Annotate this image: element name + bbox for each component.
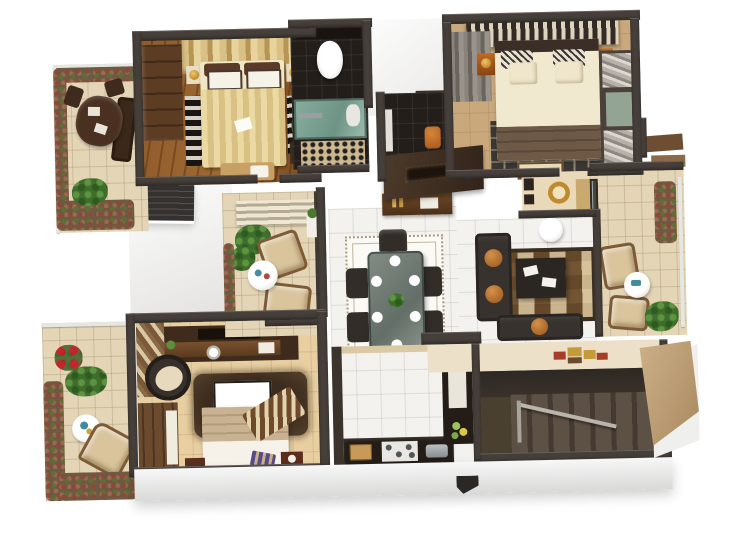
hanging-vine <box>223 243 236 319</box>
wall <box>316 187 328 317</box>
wall <box>297 164 369 174</box>
room-living <box>451 217 598 344</box>
bed <box>200 60 286 168</box>
shower-seat <box>346 104 360 126</box>
palm-plant <box>65 366 108 397</box>
balcony-railing <box>678 177 685 327</box>
wardrobe-glass-door <box>606 92 633 127</box>
room-garden-terrace <box>42 321 140 501</box>
wall <box>317 311 331 467</box>
dining-chair <box>346 268 369 298</box>
wardrobe-door <box>602 53 635 88</box>
coffee-table <box>515 258 566 299</box>
wardrobe-door <box>604 130 637 165</box>
balcony-chair <box>607 295 650 332</box>
dining-chair <box>379 229 407 252</box>
sofa-vertical <box>475 233 513 322</box>
orange-cushion <box>531 318 548 335</box>
bed <box>495 39 602 161</box>
paper <box>258 342 274 353</box>
wardrobe <box>134 402 180 473</box>
display-niche <box>405 163 449 183</box>
placemat <box>88 107 100 116</box>
wall <box>421 331 481 344</box>
orange-stool <box>424 126 440 148</box>
sofa-horizontal <box>497 313 584 341</box>
kitchen-wall <box>331 347 344 467</box>
wall <box>136 174 258 186</box>
planter-hedge-bottom <box>59 471 138 501</box>
paper <box>542 277 557 288</box>
placemat <box>94 123 108 135</box>
cream-pillow <box>509 62 537 85</box>
wall-frame <box>524 194 534 204</box>
orange-cushion <box>485 285 503 303</box>
wardrobe <box>142 44 184 141</box>
shower-arm <box>298 113 322 119</box>
wardrobe-open-door <box>166 410 178 464</box>
bedside-rug-left <box>185 96 203 166</box>
hanging-planters <box>654 181 677 243</box>
room-master-balcony <box>589 167 687 337</box>
wall <box>288 18 372 29</box>
stair-treads <box>511 391 670 459</box>
cream-pillow <box>555 61 583 84</box>
papasan-cushion <box>151 362 187 396</box>
glass-shower <box>294 98 367 140</box>
slatted-railing <box>236 199 317 225</box>
centerpiece <box>388 293 404 307</box>
dining-chair <box>347 312 370 342</box>
room-staircase <box>478 367 670 459</box>
room-bathroom-1 <box>290 24 369 170</box>
cutting-board <box>350 444 372 460</box>
glass-dining-table <box>367 251 425 356</box>
table-decor <box>631 280 641 286</box>
wall-frame <box>524 178 534 190</box>
terrace-railing <box>42 321 136 327</box>
papasan-chair <box>145 354 192 401</box>
wall <box>279 173 321 183</box>
decor-dish <box>206 345 220 359</box>
bed <box>202 406 289 472</box>
round-side-table <box>624 272 651 299</box>
apartment-scene <box>0 0 736 546</box>
room-bedroom-1 <box>139 29 312 185</box>
potted-plant <box>644 301 679 332</box>
orange-cushion <box>484 249 502 267</box>
medallion-inlay <box>553 347 607 364</box>
tray <box>420 197 438 208</box>
paper <box>523 265 539 277</box>
pillow <box>207 70 242 91</box>
bottle <box>399 197 403 207</box>
cookware <box>426 444 448 457</box>
round-side-table <box>539 218 564 243</box>
nightstand-left <box>477 53 495 75</box>
planter-hedge-top <box>53 66 145 83</box>
gold-duvet <box>201 88 287 168</box>
four-burner-hob <box>382 441 418 462</box>
brown-blanket <box>496 125 601 161</box>
magazine <box>234 117 253 133</box>
pillow <box>246 69 281 90</box>
drum-mirror <box>548 181 570 203</box>
toilet <box>316 41 343 80</box>
floor-plan-render <box>0 0 736 546</box>
